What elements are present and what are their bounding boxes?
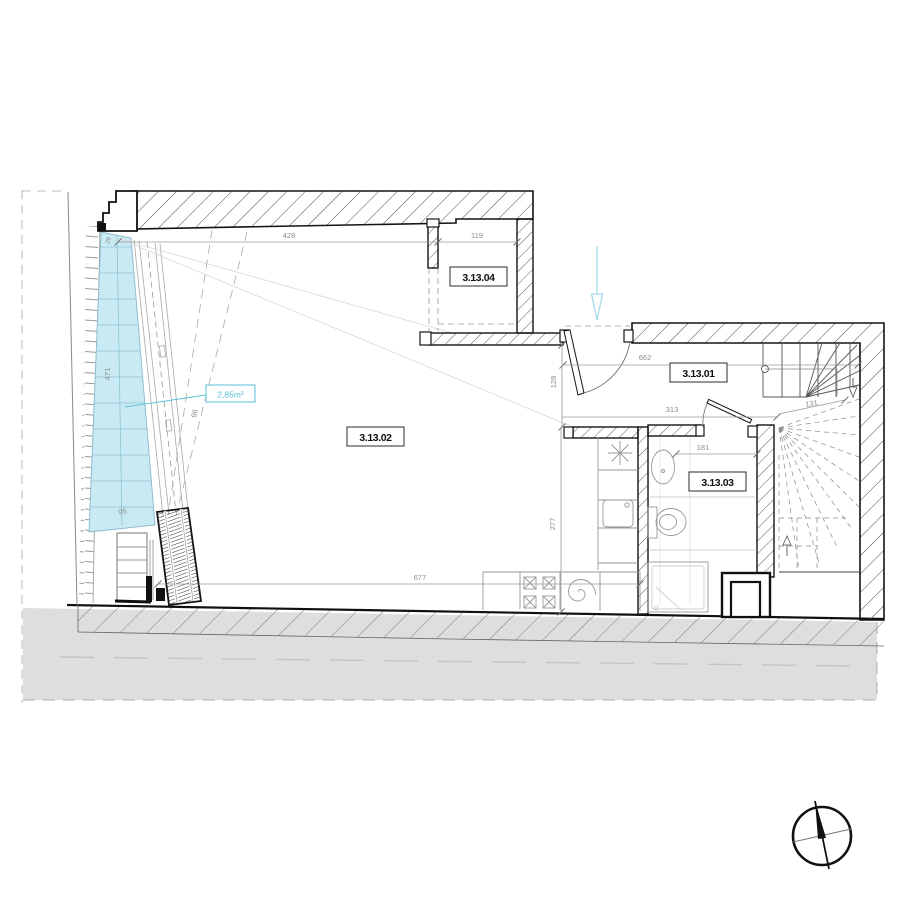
star-symbol [608, 441, 632, 465]
room-label-text: 3.13.02 [359, 432, 392, 444]
upper-winder-5 [779, 428, 859, 481]
dim-471: 471 [103, 368, 112, 381]
projection-line-2 [176, 232, 247, 516]
cap-kitchen-wall-left [564, 427, 573, 438]
upper-winder-2 [779, 416, 859, 428]
frame-line-4 [155, 243, 183, 512]
upper-winder-7 [779, 428, 852, 529]
projection-line-1 [168, 230, 212, 515]
kitchen-fittings [483, 437, 640, 611]
wall-closet-right [517, 219, 533, 333]
sight-line-1 [120, 239, 452, 333]
dim-131: 131 [805, 398, 819, 409]
upper-winder-6 [779, 428, 859, 507]
wall-top [133, 191, 533, 229]
entry-door-swing [584, 342, 630, 393]
dim-119: 119 [471, 231, 483, 240]
wall-closet-stub [428, 223, 438, 268]
room-label-text: 3.13.01 [682, 368, 715, 380]
room-label-3-13-01: 3.13.01 [670, 363, 727, 382]
support-block-1 [146, 576, 152, 602]
room-label-3-13-04: 3.13.04 [450, 267, 507, 286]
dim-662: 662 [639, 353, 652, 362]
entry-door [564, 326, 630, 395]
dim-677: 677 [414, 573, 427, 582]
room-label-text: 3.13.03 [701, 477, 734, 489]
spiral-symbol [569, 580, 596, 602]
dimensions: 428 119 662 128 313 131 181 277 677 471 … [103, 231, 862, 616]
washbasin-drain [662, 470, 665, 473]
bath-door-leaf [707, 399, 752, 423]
arrow-head [592, 294, 603, 320]
parapet-block [98, 223, 106, 231]
neighbour-wall-line [68, 192, 77, 605]
frame-section-1 [159, 346, 165, 358]
dim-428: 428 [283, 231, 296, 240]
entrance-direction-arrow-icon [592, 246, 603, 320]
cap-entry-right [624, 330, 633, 342]
wall-bath-right [757, 425, 774, 577]
floor-plan-page: 428 119 662 128 313 131 181 277 677 471 … [0, 0, 900, 900]
cap-closet-bottom-left [420, 332, 431, 345]
toilet [648, 507, 686, 538]
wall-bath-top [648, 425, 700, 436]
wall-kitchen-top [573, 427, 638, 438]
shower-tray [648, 562, 708, 612]
room-label-text: 3.13.04 [462, 272, 495, 284]
cap-bath-door-right [748, 426, 757, 437]
bathroom-door [703, 399, 752, 427]
staircase [762, 343, 860, 572]
stove-burners [524, 577, 555, 608]
dim-181: 181 [697, 443, 710, 452]
wall-closet-bottom [428, 333, 563, 345]
frame-line-3 [147, 242, 176, 513]
walls [98, 191, 884, 620]
upper-winder-8 [779, 428, 838, 549]
sink-tap [625, 503, 629, 507]
bath-door-swing [703, 404, 707, 427]
cabinet [117, 533, 147, 601]
support-block-2 [156, 588, 165, 601]
wall-bath-left [638, 427, 648, 614]
upper-winder-1 [779, 399, 859, 428]
dim-313: 313 [666, 405, 679, 414]
dim-277: 277 [548, 518, 557, 531]
cabinet-base [115, 601, 151, 602]
room-label-3-13-02: 3.13.02 [347, 427, 404, 446]
counter-bottom-outline [483, 572, 640, 610]
area-label-text: 2,85m² [217, 390, 244, 400]
north-compass-icon [793, 801, 851, 869]
washbasin [652, 450, 675, 484]
cap-closet-stub [427, 219, 439, 227]
terrain-section [23, 605, 884, 700]
dim-96: 96 [189, 408, 200, 418]
entry-door-leaf [564, 330, 584, 395]
upper-winder-3 [779, 428, 859, 435]
room-label-3-13-03: 3.13.03 [689, 472, 746, 491]
dim-128: 128 [549, 376, 558, 389]
glazed-roof-strip [89, 232, 188, 532]
niche-inner [731, 582, 760, 617]
upper-winder-10 [779, 428, 799, 570]
floor-plan-canvas: 428 119 662 128 313 131 181 277 677 471 … [0, 0, 900, 900]
